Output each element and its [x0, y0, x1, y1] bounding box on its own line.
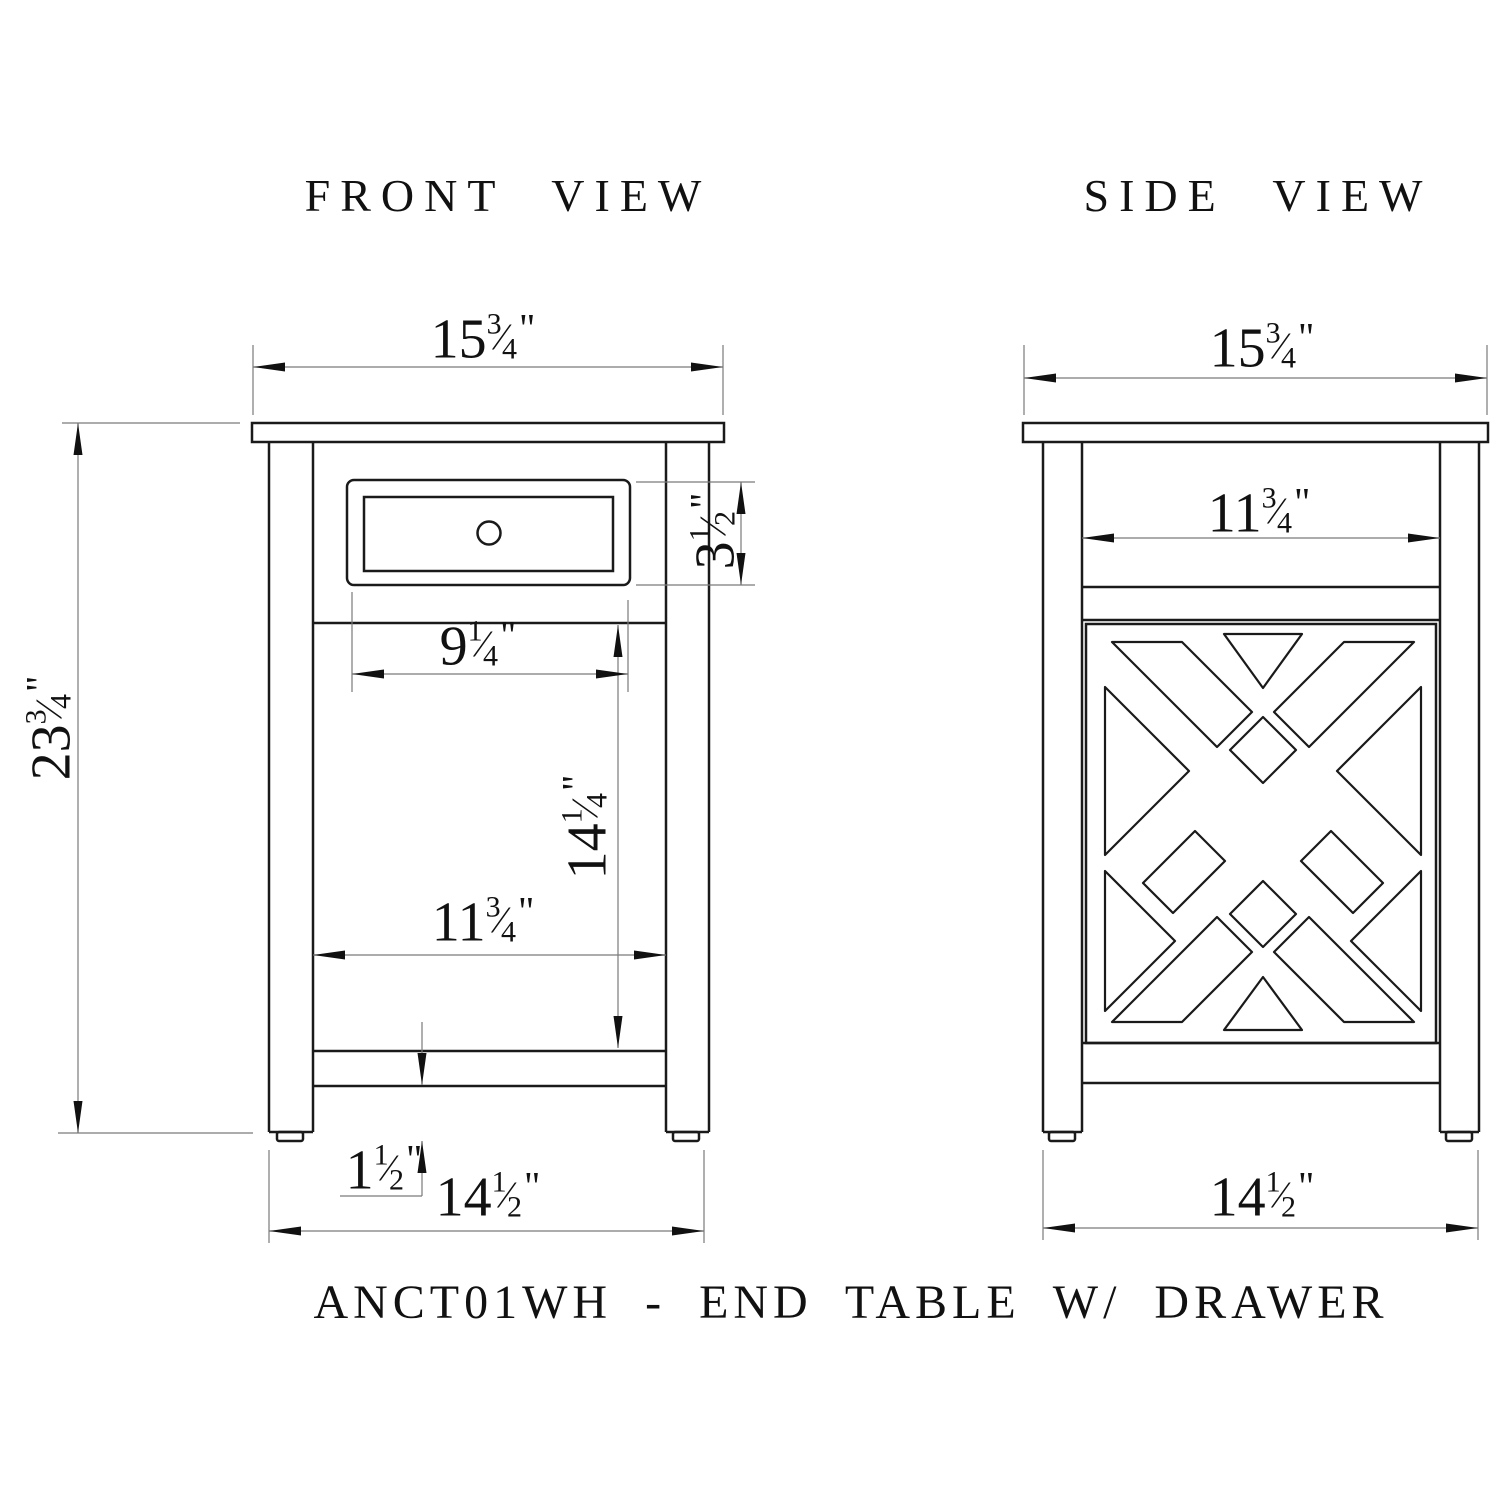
dim-denominator: 4 [45, 694, 78, 709]
dim-denominator: 2 [1281, 1191, 1296, 1224]
dim-denominator: 4 [1281, 342, 1296, 375]
dim-side-top-depth: 153⁄4" [1210, 318, 1315, 377]
dim-denominator: 2 [389, 1164, 404, 1197]
lattice-hole [1230, 881, 1296, 947]
side-tabletop [1023, 423, 1488, 442]
dim-front-drawer-height: 31⁄2" [685, 493, 744, 570]
dim-side-base-depth: 141⁄2" [1210, 1167, 1315, 1226]
dim-denominator: 2 [507, 1191, 522, 1224]
lattice-hole [1143, 831, 1225, 913]
dim-inch-mark: " [18, 676, 63, 692]
dim-front-drawer-width: 91⁄4" [440, 616, 517, 675]
arrowheads-up [74, 423, 746, 1173]
lattice-hole [1105, 687, 1189, 855]
lattice-hole [1301, 831, 1383, 913]
dim-inch-mark: " [524, 1164, 540, 1209]
dim-front-height: 233⁄4" [21, 676, 80, 781]
dim-inch-mark: " [1298, 315, 1314, 360]
front-drawer-inner [364, 497, 613, 571]
lattice-hole [1224, 634, 1302, 688]
dim-denominator: 2 [709, 511, 742, 526]
dim-inch-mark: " [554, 775, 599, 791]
dim-front-interior-width: 113⁄4" [432, 892, 535, 951]
front-view-title: FRONT VIEW [305, 173, 712, 219]
dim-inch-mark: " [519, 306, 535, 351]
dim-denominator: 4 [502, 333, 517, 366]
dim-inch-mark: " [1298, 1164, 1314, 1209]
dim-inch-mark: " [1294, 480, 1310, 525]
arrowheads-down [74, 553, 746, 1133]
dim-whole: 11 [1208, 483, 1262, 545]
dim-whole: 15 [1210, 318, 1266, 380]
dim-whole: 23 [21, 724, 83, 780]
dim-denominator: 4 [501, 916, 516, 949]
side-foot-left [1049, 1132, 1075, 1141]
technical-drawing-page: FRONT VIEW SIDE VIEW 153⁄4" 233⁄4" 31⁄2"… [0, 0, 1500, 1500]
dim-denominator: 4 [483, 640, 498, 673]
dim-front-shelf-height: 11⁄2" [346, 1140, 423, 1199]
dim-whole: 11 [432, 892, 486, 954]
dim-whole: 14 [557, 823, 619, 879]
dim-whole: 3 [685, 541, 747, 569]
dim-inch-mark: " [406, 1137, 422, 1182]
dim-front-base-width: 141⁄2" [436, 1167, 541, 1226]
dim-front-interior-height: 141⁄4" [557, 775, 616, 880]
front-tabletop [252, 423, 724, 442]
front-foot-right [673, 1132, 699, 1141]
dim-front-top-width: 153⁄4" [431, 309, 536, 368]
front-view-outline [252, 423, 724, 1141]
front-drawer-knob [478, 522, 501, 545]
side-foot-right [1446, 1132, 1472, 1141]
dim-inch-mark: " [682, 493, 727, 509]
front-foot-left [277, 1132, 303, 1141]
dim-whole: 14 [436, 1167, 492, 1229]
dim-denominator: 4 [1277, 507, 1292, 540]
side-view-title: SIDE VIEW [1084, 173, 1433, 219]
dimension-lines [58, 345, 1487, 1243]
lattice-hole [1230, 717, 1296, 783]
dim-whole: 15 [431, 309, 487, 371]
lattice-fretwork-cutouts [1105, 634, 1421, 1030]
drawing-caption: ANCT01WH - END TABLE W/ DRAWER [313, 1279, 1388, 1327]
dim-side-interior-depth: 113⁄4" [1208, 483, 1311, 542]
drawing-linework [0, 0, 1500, 1500]
lattice-hole [1224, 977, 1302, 1030]
dim-whole: 14 [1210, 1167, 1266, 1229]
dim-inch-mark: " [518, 889, 534, 934]
lattice-hole [1337, 687, 1421, 855]
dim-inch-mark: " [500, 613, 516, 658]
dim-whole: 1 [346, 1140, 374, 1202]
dim-denominator: 4 [581, 793, 614, 808]
dim-whole: 9 [440, 616, 468, 678]
